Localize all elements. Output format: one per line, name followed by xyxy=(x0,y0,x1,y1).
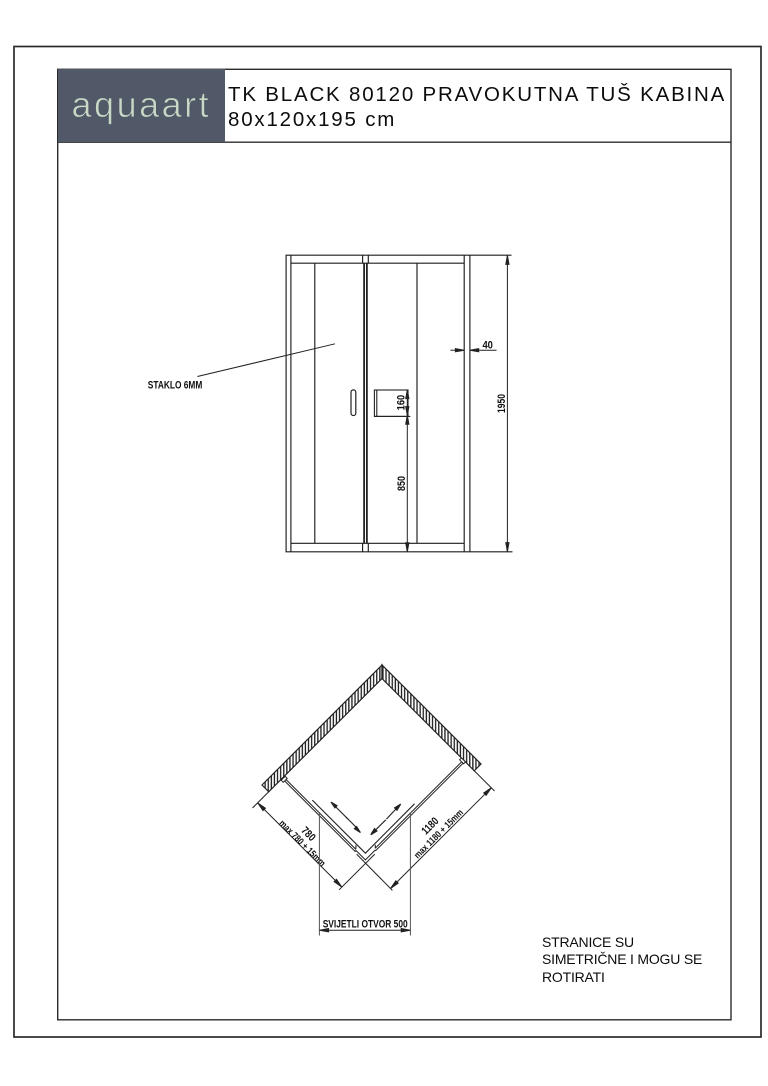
svg-text:STAKLO 6MM: STAKLO 6MM xyxy=(148,380,203,392)
svg-text:160: 160 xyxy=(396,395,408,411)
svg-text:40: 40 xyxy=(482,339,493,351)
svg-text:SVIJETLI OTVOR 500: SVIJETLI OTVOR 500 xyxy=(323,918,408,930)
svg-text:max 1180 + 15mm: max 1180 + 15mm xyxy=(412,807,466,861)
svg-text:1950: 1950 xyxy=(496,394,508,413)
svg-text:850: 850 xyxy=(396,476,408,491)
